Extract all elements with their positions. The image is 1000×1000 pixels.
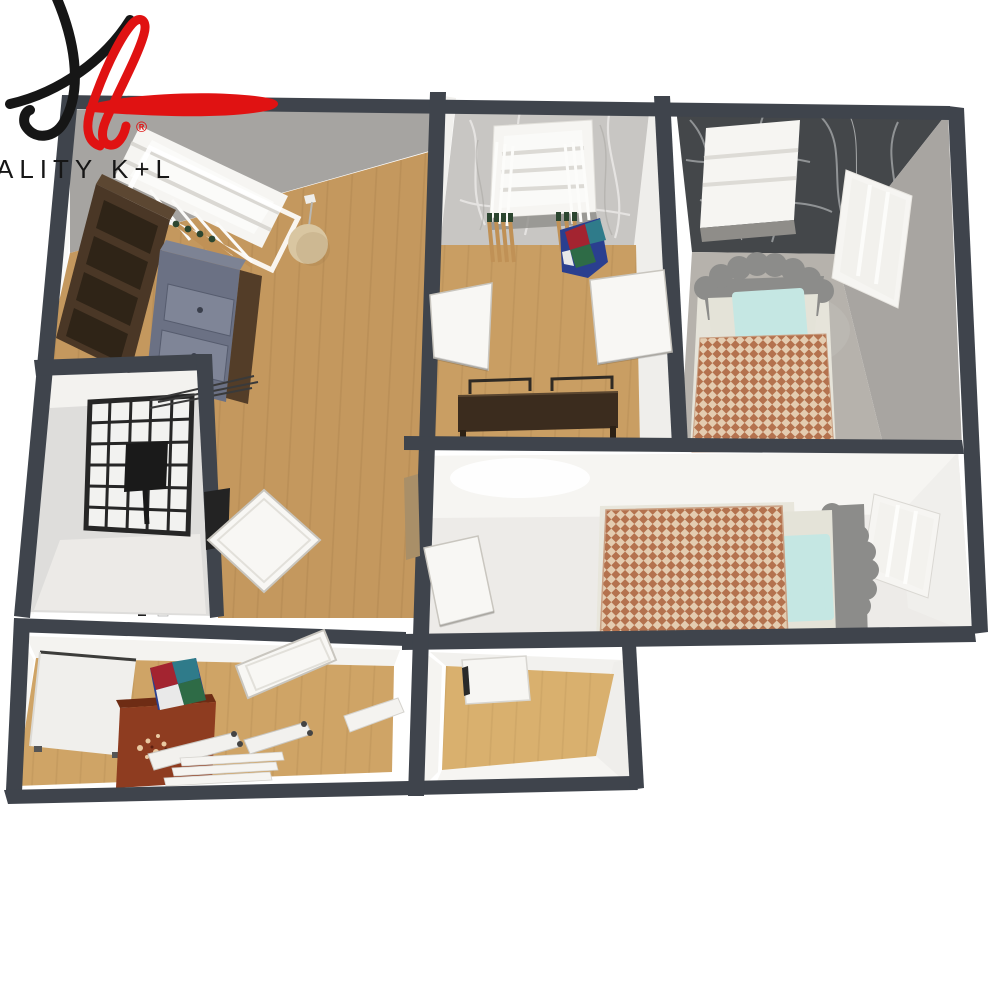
bedroom-top-right (676, 108, 962, 452)
stick-tip (487, 213, 492, 222)
floorplan-canvas: ® ALITY K+L (0, 0, 1000, 1000)
stick-tip (197, 231, 204, 238)
logo-script-k-stroke (24, 0, 75, 136)
floral-center (151, 746, 154, 749)
desk-top (458, 392, 618, 432)
floral-dot (137, 745, 143, 751)
pillow (784, 538, 830, 618)
headboard-knob (857, 559, 879, 581)
checkered-blanket (692, 334, 834, 452)
stick-tip (209, 236, 216, 243)
bedroom-middle (416, 452, 972, 646)
door-panel (590, 270, 672, 364)
door-frame-sliver (404, 474, 420, 560)
bed-middle (596, 502, 879, 646)
bench-cap (231, 731, 237, 737)
bench-cap (301, 721, 307, 727)
small-room (422, 652, 630, 788)
table-top (462, 656, 530, 704)
marble-wall-shutter-panel (700, 120, 800, 242)
kids-room-door-right (590, 270, 672, 364)
floral-dot (146, 739, 151, 744)
shower-pipe (145, 490, 147, 524)
bench-cap (237, 741, 243, 747)
floral-dot (162, 742, 167, 747)
stick-tip (173, 221, 180, 228)
bench-cap (307, 730, 313, 736)
stick-tip (508, 213, 513, 222)
stick-tip (185, 226, 192, 233)
drawer-handle (197, 307, 203, 313)
floral-dot (156, 734, 160, 738)
brand-text: ALITY K+L (0, 154, 176, 184)
small-room-table (462, 656, 530, 704)
lantern-shade (296, 232, 330, 266)
floorplan-screenshot: ® ALITY K+L (0, 0, 1000, 1000)
bathroom-floor (34, 534, 206, 614)
registered-mark: ® (136, 119, 147, 136)
kids-room-door-left (430, 283, 492, 370)
kids-window (490, 120, 598, 230)
checkered-blanket (600, 506, 788, 642)
stick-tip (556, 212, 561, 221)
pillow (736, 292, 804, 342)
stick-tip (494, 213, 499, 222)
office-room (8, 636, 404, 788)
stick-tip (501, 213, 506, 222)
desk-foot (34, 746, 42, 752)
shutter-panel (700, 120, 800, 228)
kids-room (428, 96, 676, 446)
shower-fixture (124, 441, 168, 492)
door-panel (430, 283, 492, 370)
bed-top-right (690, 252, 836, 452)
desk-leg (610, 426, 616, 439)
ceiling-light-glow (450, 458, 590, 498)
stick-tip (572, 212, 577, 221)
stick-tip (564, 212, 569, 221)
